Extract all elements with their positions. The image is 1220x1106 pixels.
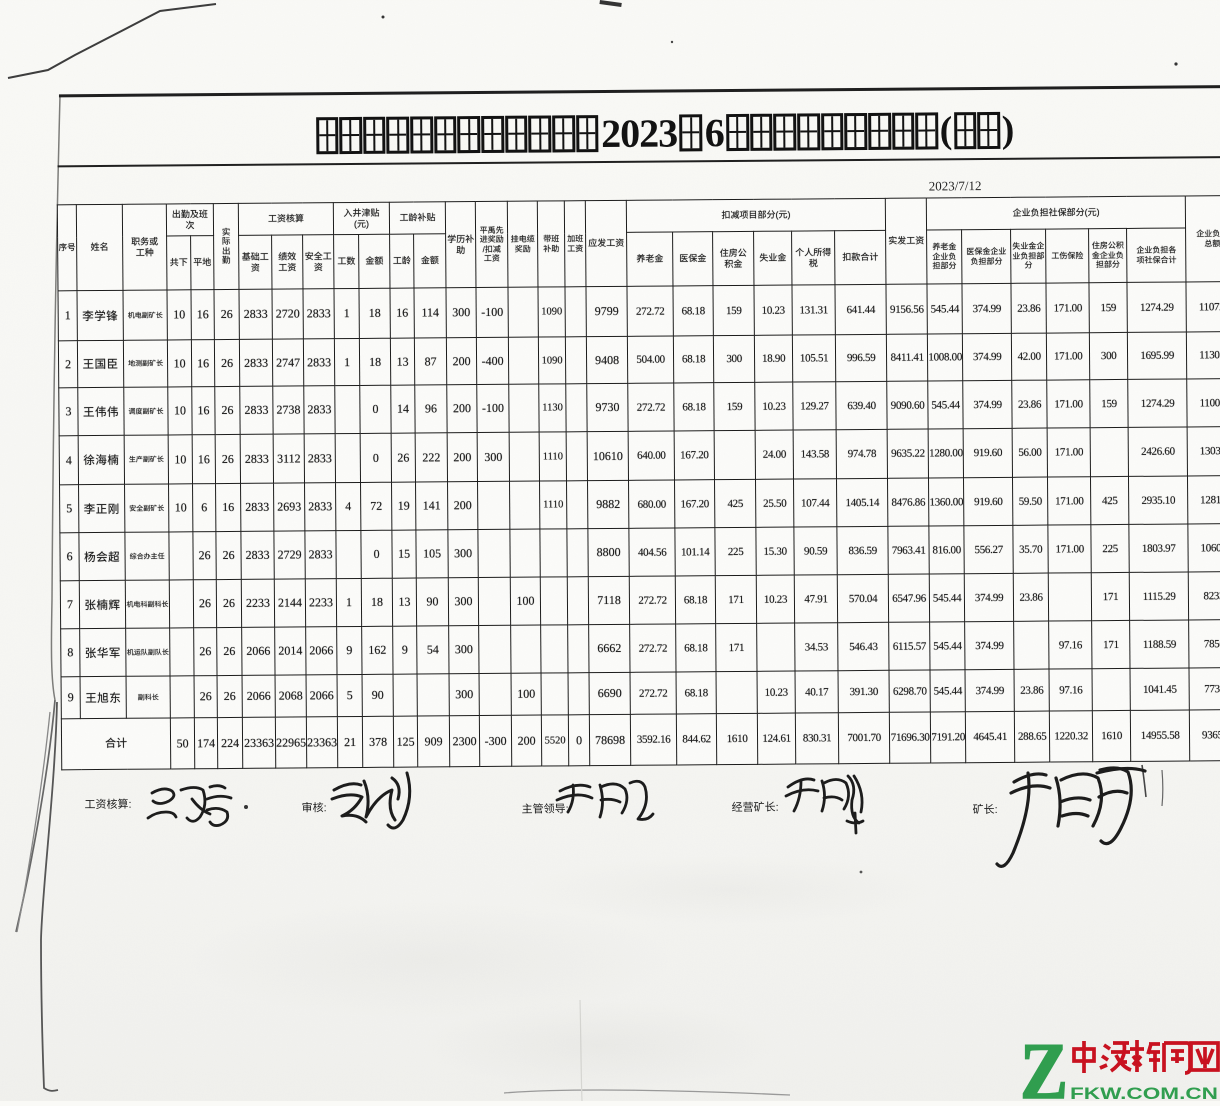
svg-text:Z: Z <box>1022 1038 1068 1101</box>
svg-text:FKW.COM.CN: FKW.COM.CN <box>1070 1084 1218 1101</box>
